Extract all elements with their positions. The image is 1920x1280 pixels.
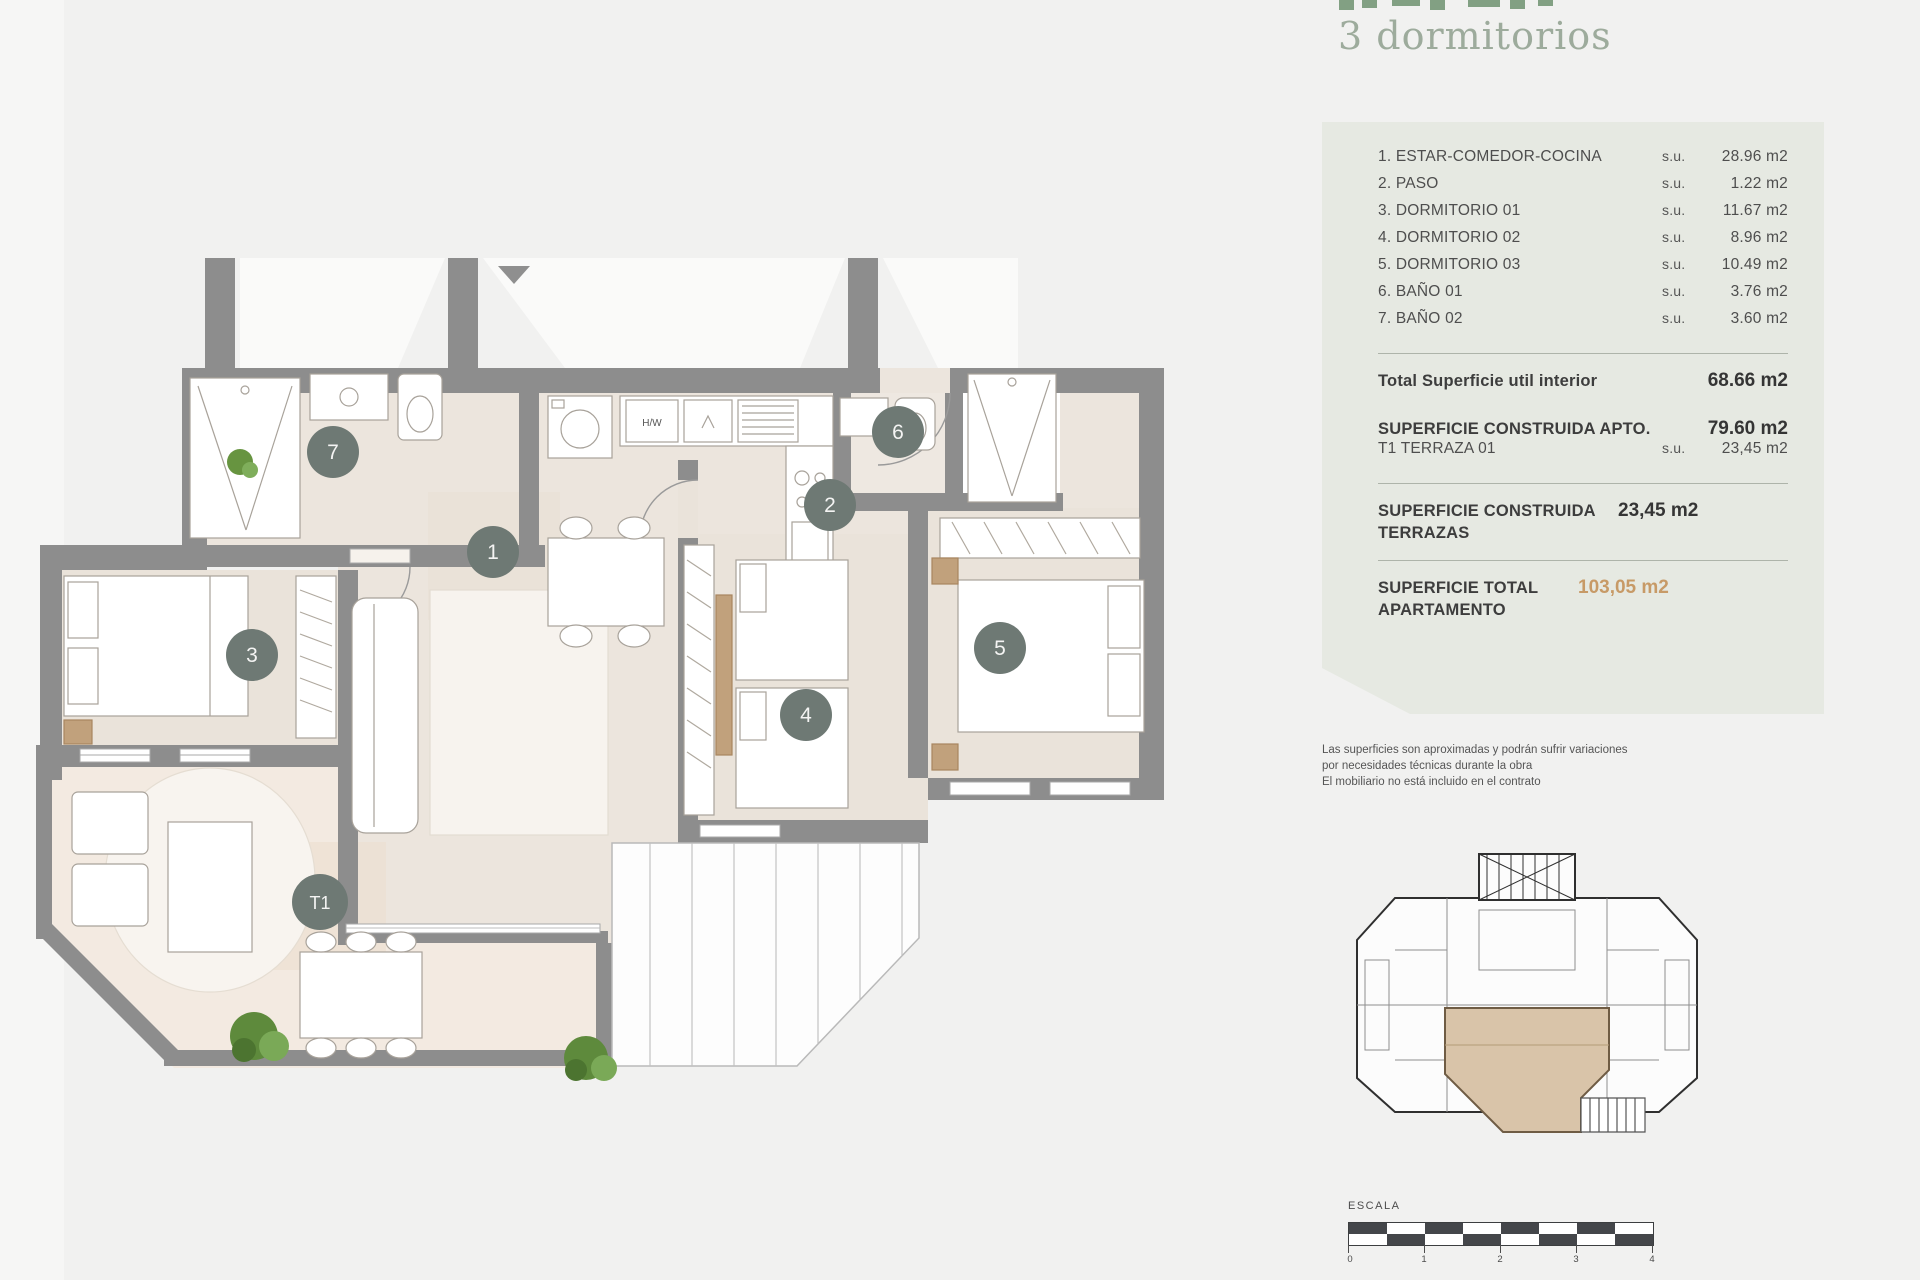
scale-tick: 0 <box>1347 1254 1352 1265</box>
wardrobe-4-shelf <box>716 595 732 755</box>
svg-text:1: 1 <box>487 541 499 564</box>
room-value: 8.96 m2 <box>1700 229 1788 247</box>
su-label: s.u. <box>1662 256 1700 272</box>
construida-apto-value: 79.60 m2 <box>1708 418 1788 440</box>
construida-apto-row: SUPERFICIE CONSTRUIDA APTO. 79.60 m2 <box>1378 418 1788 440</box>
badge-1: 1 <box>467 526 519 578</box>
room-label: 1. ESTAR-COMEDOR-COCINA <box>1378 148 1662 166</box>
divider <box>1378 483 1788 484</box>
hatched-terrace <box>612 843 919 1066</box>
total-util-row: Total Superficie util interior 68.66 m2 <box>1378 370 1788 392</box>
table-row: 7. BAÑO 02 s.u. 3.60 m2 <box>1378 310 1788 337</box>
svg-text:T1: T1 <box>309 893 330 913</box>
scale-tick: 3 <box>1573 1254 1578 1265</box>
table-row: 1. ESTAR-COMEDOR-COCINA s.u. 28.96 m2 <box>1378 148 1788 175</box>
terrace-sofa <box>72 792 148 854</box>
scale-bar <box>1348 1222 1654 1246</box>
room-value: 10.49 m2 <box>1700 256 1788 274</box>
terrace-dining <box>300 932 422 1058</box>
room-label: 6. BAÑO 01 <box>1378 283 1662 301</box>
wardrobe-3 <box>296 576 336 738</box>
total-apartamento-label: SUPERFICIE TOTAL APARTAMENTO <box>1378 577 1578 621</box>
badge-7: 7 <box>307 426 359 478</box>
divider <box>1378 560 1788 561</box>
svg-text:5: 5 <box>994 637 1006 660</box>
table-row: 3. DORMITORIO 01 s.u. 11.67 m2 <box>1378 202 1788 229</box>
room-value: 3.76 m2 <box>1700 283 1788 301</box>
room-value: 3.60 m2 <box>1700 310 1788 328</box>
su-label: s.u. <box>1662 202 1700 218</box>
terraza-row: T1 TERRAZA 01 s.u. 23,45 m2 <box>1378 440 1788 467</box>
construida-terrazas-value: 23,45 m2 <box>1618 500 1698 522</box>
svg-text:7: 7 <box>327 441 339 464</box>
su-label: s.u. <box>1662 175 1700 191</box>
table-row: 2. PASO s.u. 1.22 m2 <box>1378 175 1788 202</box>
surface-table-panel: 1. ESTAR-COMEDOR-COCINA s.u. 28.96 m2 2.… <box>1322 122 1824 714</box>
terraza-value: 23,45 m2 <box>1700 440 1788 458</box>
scale-label: ESCALA <box>1348 1200 1400 1212</box>
room-value: 1.22 m2 <box>1700 175 1788 193</box>
disclaimer-line: Las superficies son aproximadas y podrán… <box>1322 742 1662 758</box>
room-label: 2. PASO <box>1378 175 1662 193</box>
room-label: 7. BAÑO 02 <box>1378 310 1662 328</box>
kitchen-label: H/W <box>642 418 662 429</box>
room-label: 4. DORMITORIO 02 <box>1378 229 1662 247</box>
sofa <box>352 598 418 833</box>
scale-tick: 4 <box>1649 1254 1654 1265</box>
table-row: 6. BAÑO 01 s.u. 3.76 m2 <box>1378 283 1788 310</box>
table-row: 5. DORMITORIO 03 s.u. 10.49 m2 <box>1378 256 1788 283</box>
su-label: s.u. <box>1662 229 1700 245</box>
overview-slat-terrace <box>1581 1098 1645 1132</box>
scale-tick: 1 <box>1421 1254 1426 1265</box>
total-apartamento-value: 103,05 m2 <box>1578 577 1669 599</box>
bed-3 <box>64 576 248 716</box>
badge-3: 3 <box>226 629 278 681</box>
su-label: s.u. <box>1662 148 1700 164</box>
table-row: 4. DORMITORIO 02 s.u. 8.96 m2 <box>1378 229 1788 256</box>
scale-tick: 2 <box>1497 1254 1502 1265</box>
terrace-sofa <box>72 864 148 926</box>
svg-text:2: 2 <box>824 494 836 517</box>
room-value: 28.96 m2 <box>1700 148 1788 166</box>
badge-6: 6 <box>872 406 924 458</box>
badge-4: 4 <box>780 689 832 741</box>
disclaimer-line: El mobiliario no está incluido en el con… <box>1322 774 1662 790</box>
wardrobe-4 <box>684 545 714 815</box>
badge-5: 5 <box>974 622 1026 674</box>
building-overview-plan <box>1327 840 1727 1180</box>
brochure-page: H/W 1 2 3 4 5 6 7 T1 <box>0 0 1920 1280</box>
bath7-sink <box>310 374 388 420</box>
room-value: 11.67 m2 <box>1700 202 1788 220</box>
nightstand <box>64 720 92 744</box>
ensuite-shower <box>968 374 1056 502</box>
total-apartamento-row: SUPERFICIE TOTAL APARTAMENTO 103,05 m2 <box>1378 577 1788 621</box>
nightstand <box>932 744 958 770</box>
su-label: s.u. <box>1662 310 1700 326</box>
washing-machine <box>548 396 612 458</box>
badge-2: 2 <box>804 479 856 531</box>
svg-text:4: 4 <box>800 704 812 727</box>
total-util-label: Total Superficie util interior <box>1378 370 1708 392</box>
scale-bar-block: ESCALA 0 1 2 3 4 <box>1348 1200 1668 1270</box>
terraza-label: T1 TERRAZA 01 <box>1378 440 1662 458</box>
light-shafts <box>240 258 1018 368</box>
badge-T1: T1 <box>292 874 348 930</box>
room-label: 3. DORMITORIO 01 <box>1378 202 1662 220</box>
divider <box>1378 353 1788 354</box>
total-util-value: 68.66 m2 <box>1708 370 1788 392</box>
terrace-coffee-table <box>168 822 252 952</box>
floor-plan: H/W 1 2 3 4 5 6 7 T1 <box>0 0 1210 1280</box>
wardrobe-5 <box>940 518 1140 558</box>
construida-apto-label: SUPERFICIE CONSTRUIDA APTO. <box>1378 418 1708 440</box>
construida-terrazas-label: SUPERFICIE CONSTRUIDA TERRAZAS <box>1378 500 1618 544</box>
disclaimer-line: por necesidades técnicas durante la obra <box>1322 758 1662 774</box>
room-label: 5. DORMITORIO 03 <box>1378 256 1662 274</box>
su-label: s.u. <box>1662 283 1700 299</box>
disclaimer: Las superficies son aproximadas y podrán… <box>1322 742 1662 790</box>
svg-text:6: 6 <box>892 421 904 444</box>
nightstand <box>932 558 958 584</box>
su-label: s.u. <box>1662 440 1700 456</box>
svg-text:3: 3 <box>246 644 258 667</box>
page-subtitle: 3 dormitorios <box>1338 14 1612 58</box>
bath7-toilet <box>398 374 442 440</box>
construida-terrazas-row: SUPERFICIE CONSTRUIDA TERRAZAS 23,45 m2 <box>1378 500 1788 544</box>
